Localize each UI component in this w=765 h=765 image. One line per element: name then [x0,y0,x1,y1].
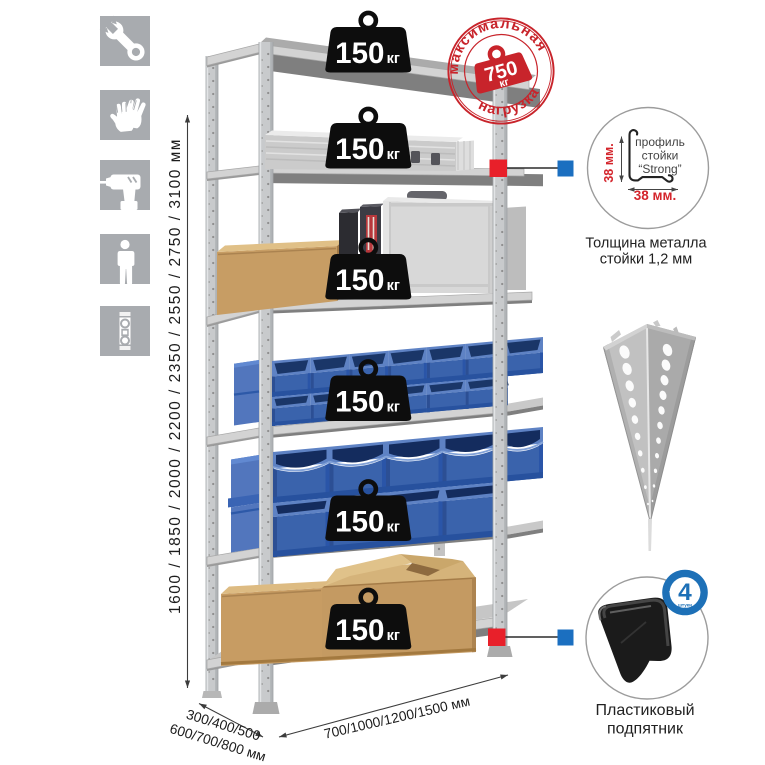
svg-text:150: 150 [335,264,384,297]
svg-text:Толщина металла: Толщина металла [585,236,707,252]
svg-text:профиль: профиль [635,135,685,149]
svg-text:Пластиковый: Пластиковый [595,702,694,719]
svg-text:кг: кг [387,628,400,644]
svg-text:38 мм.: 38 мм. [634,188,677,203]
svg-text:стойки: стойки [642,149,679,163]
svg-text:“Strong”: “Strong” [638,162,681,176]
svg-text:1600 / 1850 / 2000 / 2200 / 23: 1600 / 1850 / 2000 / 2200 / 2350 / 2550 … [167,138,184,614]
svg-text:кг: кг [387,147,400,163]
svg-text:стойки 1,2 мм: стойки 1,2 мм [600,252,693,268]
svg-text:150: 150 [335,37,384,70]
svg-text:подпятник: подпятник [607,721,684,738]
svg-text:кг: кг [387,51,400,67]
svg-text:кг: кг [387,520,400,536]
svg-text:150: 150 [335,386,384,419]
svg-text:кг: кг [387,400,400,416]
svg-text:150: 150 [335,614,384,647]
svg-text:штуки: штуки [678,603,692,608]
svg-text:кг: кг [387,278,400,294]
svg-text:150: 150 [335,133,384,166]
svg-text:38 мм.: 38 мм. [602,143,616,182]
svg-text:150: 150 [335,506,384,539]
